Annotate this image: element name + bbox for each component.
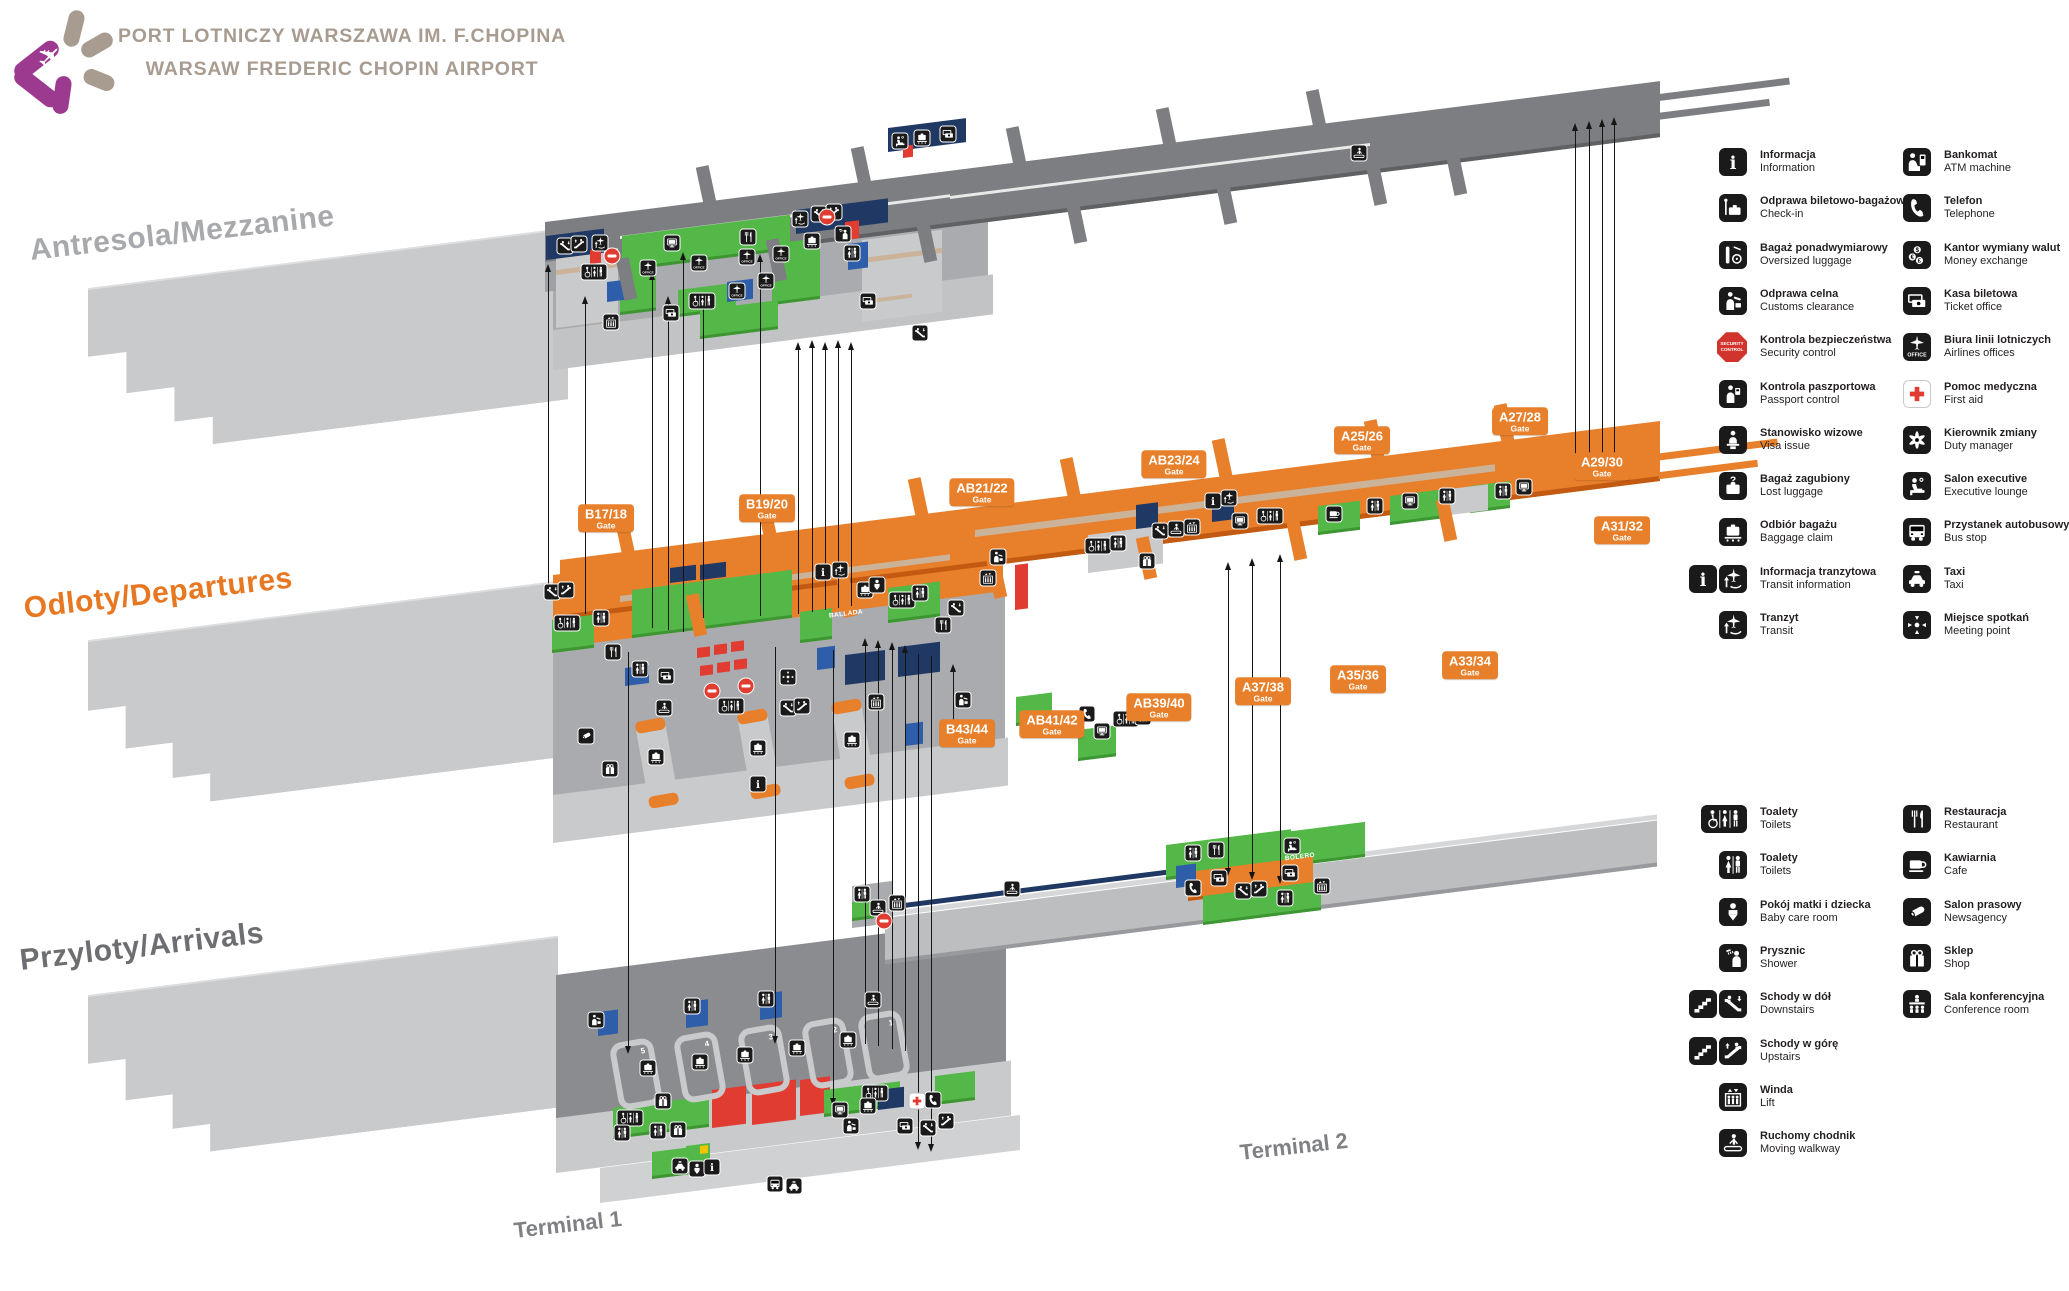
legend-icon-box xyxy=(1685,1083,1747,1111)
customs-icon xyxy=(990,549,1007,566)
toilets-acc-icon xyxy=(581,264,608,281)
news-icon xyxy=(1903,898,1931,926)
gate-label-AB23-24: AB23/24Gate xyxy=(1141,450,1206,478)
svg-text:i: i xyxy=(821,567,825,578)
gate-number: B43/44 xyxy=(946,722,988,735)
ticket-icon xyxy=(658,668,675,685)
level-connection-arrow xyxy=(1575,127,1576,474)
level-connection-arrow xyxy=(918,654,919,1146)
stop-icon xyxy=(704,683,721,700)
legend-text: Biura linii lotniczychAirlines offices xyxy=(1944,334,2051,360)
legend-icon-box xyxy=(1685,1037,1747,1065)
exchange-icon: $€£ xyxy=(1903,241,1931,269)
gate-word: Gate xyxy=(956,495,1007,504)
legend-text-pl: Informacja xyxy=(1760,149,1816,162)
ticket-icon xyxy=(1282,865,1299,882)
esc-down-icon xyxy=(1152,523,1169,540)
level-connection-arrow xyxy=(892,646,893,1049)
legend-item-transit-information: iInformacja tranzytowaTransit informatio… xyxy=(1685,564,1876,594)
legend-item-moving-walkway: Ruchomy chodnikMoving walkway xyxy=(1685,1128,1855,1158)
esc-down-icon xyxy=(1235,883,1252,900)
level-connection-arrow xyxy=(865,642,866,1044)
legend-text: KawiarniaCafe xyxy=(1944,852,1996,878)
legend-text-en: Passport control xyxy=(1760,394,1876,407)
legend-item-duty-manager: Kierownik zmianyDuty manager xyxy=(1869,425,2037,455)
transit-icon xyxy=(1719,611,1747,639)
gate-label-AB21-22: AB21/22Gate xyxy=(949,478,1014,506)
gate-finger xyxy=(1212,438,1233,482)
legend-item-atm-machine: BankomatATM machine xyxy=(1869,147,2011,177)
jet-bridge xyxy=(1655,99,1770,120)
level-connection-arrow xyxy=(1228,566,1229,872)
customs-icon xyxy=(955,692,972,709)
level-connection-arrow xyxy=(1589,125,1590,476)
walkway-icon xyxy=(1168,521,1185,538)
esc-up-icon xyxy=(1719,1037,1747,1065)
legend-text-pl: Tranzyt xyxy=(1760,612,1799,625)
departures-apron-plate xyxy=(88,581,558,817)
baby-icon xyxy=(1719,898,1747,926)
legend-text-pl: Bagaż zagubiony xyxy=(1760,473,1850,486)
carousel-number: 4 xyxy=(704,1039,710,1049)
screen-icon xyxy=(1232,513,1249,530)
ticket-icon xyxy=(860,293,877,310)
duty-icon xyxy=(1903,426,1931,454)
legend-text: Sala konferencyjnaConference room xyxy=(1944,991,2044,1017)
toilets-acc-icon xyxy=(1257,508,1284,525)
legend-text-en: Money exchange xyxy=(1944,255,2060,268)
walkway-icon xyxy=(1351,145,1368,162)
legend-item-shop: SklepShop xyxy=(1869,943,1973,973)
toilets-icon xyxy=(758,991,775,1008)
legend-text-pl: Telefon xyxy=(1944,195,1995,208)
legend-text-en: Executive lounge xyxy=(1944,486,2028,499)
legend-item-lift: WindaLift xyxy=(1685,1082,1793,1112)
legend-text: Pomoc medycznaFirst aid xyxy=(1944,381,2037,407)
toilets-icon xyxy=(1367,498,1384,515)
gate-word: Gate xyxy=(1026,727,1077,736)
legend-text: Kierownik zmianyDuty manager xyxy=(1944,427,2037,453)
gate-number: AB23/24 xyxy=(1148,453,1199,466)
svg-text:OFFICE: OFFICE xyxy=(741,260,752,264)
gate-label-A37-38: A37/38Gate xyxy=(1235,677,1291,705)
customs-icon xyxy=(843,1118,860,1135)
legend-text: Schody w dółDownstairs xyxy=(1760,991,1831,1017)
level-label-departures: Odloty/Departures xyxy=(22,562,294,626)
info-icon: i xyxy=(1719,148,1747,176)
legend-text-pl: Przystanek autobusowy xyxy=(1944,519,2069,532)
lounge-icon xyxy=(1284,838,1301,855)
legend-icon-box xyxy=(1685,518,1747,546)
level-connection-arrow xyxy=(798,346,799,614)
legend-text-pl: Restauracja xyxy=(1944,806,2006,819)
svg-text:OFFICE: OFFICE xyxy=(775,257,786,261)
legend-text-en: Toilets xyxy=(1760,865,1798,878)
gate-number: A35/36 xyxy=(1337,668,1379,681)
toilets-icon xyxy=(1719,851,1747,879)
legend-text-pl: Kontrola paszportowa xyxy=(1760,381,1876,394)
legend-icon-box xyxy=(1685,898,1747,926)
legend-text-en: Cafe xyxy=(1944,865,1996,878)
level-connection-arrow xyxy=(585,300,586,614)
info-icon: i xyxy=(815,564,832,581)
transit-icon xyxy=(792,211,809,228)
legend-text-en: Meeting point xyxy=(1944,625,2029,638)
shower-icon xyxy=(835,226,852,243)
legend-icon-box xyxy=(1869,944,1931,972)
gate-word: Gate xyxy=(1148,467,1199,476)
ticket-icon xyxy=(940,126,957,143)
legend-item-toilets: ToaletyToilets xyxy=(1685,850,1798,880)
claim-icon xyxy=(737,1047,754,1064)
legend-item-meeting-point: Miejsce spotkańMeeting point xyxy=(1869,610,2029,640)
level-connection-arrow xyxy=(628,652,629,1050)
esc-up-icon xyxy=(558,582,575,599)
walkway-icon xyxy=(865,992,882,1009)
atm-icon xyxy=(1903,148,1931,176)
restaurant-icon xyxy=(1208,842,1225,859)
legend-icon-box: $€£ xyxy=(1869,241,1931,269)
legend-text-en: Bus stop xyxy=(1944,532,2069,545)
toilets-acc-icon xyxy=(1701,805,1747,833)
legend-text: RestauracjaRestaurant xyxy=(1944,806,2006,832)
screen-icon xyxy=(1402,493,1419,510)
legend-item-restaurant: RestauracjaRestaurant xyxy=(1869,804,2006,834)
toilets-acc-icon xyxy=(689,293,716,310)
gate-word: Gate xyxy=(1341,443,1383,452)
legend-text-en: Telephone xyxy=(1944,208,1995,221)
toilets-icon xyxy=(1110,535,1127,552)
legend-text-pl: Salon executive xyxy=(1944,473,2028,486)
legend-text-en: Ticket office xyxy=(1944,301,2017,314)
legend-icon-box xyxy=(1869,898,1931,926)
seating xyxy=(734,658,747,670)
legend-text-pl: Sklep xyxy=(1944,945,1973,958)
shop-icon xyxy=(602,761,619,778)
legend-text-pl: Bankomat xyxy=(1944,149,2011,162)
legend-text: BankomatATM machine xyxy=(1944,149,2011,175)
gate-number: A27/28 xyxy=(1499,410,1541,423)
shop-icon xyxy=(655,1093,672,1110)
legend-item-transit: TranzytTransit xyxy=(1685,610,1799,640)
legend-item-bus-stop: Przystanek autobusowyBus stop xyxy=(1869,517,2069,547)
toilets-icon xyxy=(632,661,649,678)
legend-icon-box xyxy=(1869,851,1931,879)
svg-text:i: i xyxy=(756,779,760,790)
esc-up-icon xyxy=(571,236,588,253)
office-icon: OFFICE xyxy=(1903,333,1931,361)
legend-text-en: Upstairs xyxy=(1760,1051,1838,1064)
office-icon: OFFICE xyxy=(729,283,746,300)
gate-label-A25-26: A25/26Gate xyxy=(1334,426,1390,454)
svg-text:OFFICE: OFFICE xyxy=(1907,353,1927,359)
legend-icon-box xyxy=(1869,287,1931,315)
phone-icon xyxy=(925,1092,942,1109)
esc-up-icon xyxy=(938,1113,955,1130)
legend-text: Bagaż zagubionyLost luggage xyxy=(1760,473,1850,499)
lounge-icon xyxy=(892,133,909,150)
legend-text-en: Duty manager xyxy=(1944,440,2037,453)
legend-text: Salon prasowyNewsagency xyxy=(1944,899,2022,925)
legend-item-newsagency: Salon prasowyNewsagency xyxy=(1869,897,2022,927)
legend-icon-box: ? xyxy=(1685,472,1747,500)
claim-icon xyxy=(844,732,861,749)
legend-text: Odprawa celnaCustoms clearance xyxy=(1760,288,1854,314)
jet-bridge xyxy=(1655,78,1790,102)
level-connection-arrow xyxy=(905,649,906,1051)
legend-icon-box xyxy=(1685,241,1747,269)
legend-text-en: Toilets xyxy=(1760,819,1798,832)
legend-text-en: Transit information xyxy=(1760,579,1876,592)
level-connection-arrow xyxy=(833,650,834,1102)
legend-text: Salon executiveExecutive lounge xyxy=(1944,473,2028,499)
legend-item-baggage-claim: Odbiór bagażuBaggage claim xyxy=(1685,517,1837,547)
legend-icon-box xyxy=(1869,194,1931,222)
claim-icon xyxy=(860,1098,877,1115)
restaurant-icon xyxy=(935,617,952,634)
claim-icon xyxy=(750,740,767,757)
legend-text-pl: Informacja tranzytowa xyxy=(1760,566,1876,579)
legend-text: TelefonTelephone xyxy=(1944,195,1995,221)
toilets-icon xyxy=(593,610,610,627)
bus-icon xyxy=(767,1176,784,1193)
restaurant-icon xyxy=(740,229,757,246)
legend-item-downstairs: Schody w dółDownstairs xyxy=(1685,989,1831,1019)
gate-word: Gate xyxy=(1601,533,1643,542)
legend-text-en: Baggage claim xyxy=(1760,532,1837,545)
lift-icon xyxy=(980,570,997,587)
screen-icon xyxy=(1094,723,1111,740)
legend-item-baby-care-room: Pokój matki i dzieckaBaby care room xyxy=(1685,897,1871,927)
gate-word: Gate xyxy=(746,511,788,520)
level-connection-arrow xyxy=(548,268,549,598)
taxi-icon xyxy=(672,1158,689,1175)
stop-icon xyxy=(604,248,621,265)
meeting-icon xyxy=(780,669,797,686)
legend-icon-box xyxy=(1685,611,1747,639)
legend-text-pl: Schody w górę xyxy=(1760,1038,1838,1051)
legend-text-en: Lift xyxy=(1760,1097,1793,1110)
legend-item-airlines-offices: OFFICEBiura linii lotniczychAirlines off… xyxy=(1869,332,2051,362)
legend-text: Kasa biletowaTicket office xyxy=(1944,288,2017,314)
legend-text: Schody w góręUpstairs xyxy=(1760,1038,1838,1064)
claim-icon xyxy=(840,1032,857,1049)
legend-text-en: Moving walkway xyxy=(1760,1143,1855,1156)
cafe-icon xyxy=(1326,506,1343,523)
baby-icon xyxy=(869,577,886,594)
gate-finger xyxy=(1060,457,1081,501)
svg-text:OFFICE: OFFICE xyxy=(642,271,653,275)
legend-text-en: Restaurant xyxy=(1944,819,2006,832)
legend-text-pl: Miejsce spotkań xyxy=(1944,612,2029,625)
legend-text-en: Airlines offices xyxy=(1944,347,2051,360)
arrivals-yellow-block xyxy=(700,1145,708,1154)
gate-label-A29-30: A29/30Gate xyxy=(1574,452,1630,480)
departures-shop-block xyxy=(800,608,832,643)
shop-icon xyxy=(1903,944,1931,972)
gate-word: Gate xyxy=(1499,424,1541,433)
legend-text: Stanowisko wizoweVisa issue xyxy=(1760,427,1863,453)
legend-item-executive-lounge: Salon executiveExecutive lounge xyxy=(1869,471,2028,501)
stairs-icon xyxy=(1689,990,1717,1018)
stair-block xyxy=(905,722,923,746)
legend-icon-box xyxy=(1869,990,1931,1018)
office-icon: OFFICE xyxy=(773,246,790,263)
toilets-icon xyxy=(844,245,861,262)
gate-finger xyxy=(908,477,929,521)
conference-icon xyxy=(1903,990,1931,1018)
legend-text-pl: Toalety xyxy=(1760,852,1798,865)
restaurant-icon xyxy=(605,644,622,661)
svg-text:OFFICE: OFFICE xyxy=(760,284,771,288)
legend-item-upstairs: Schody w góręUpstairs xyxy=(1685,1036,1838,1066)
toilets-acc-icon xyxy=(554,615,581,632)
legend-text: Pokój matki i dzieckaBaby care room xyxy=(1760,899,1871,925)
legend-icon-box xyxy=(1869,472,1931,500)
level-connection-arrow xyxy=(1614,121,1615,480)
legend-icon-box xyxy=(1685,194,1747,222)
gate-word: Gate xyxy=(1242,694,1284,703)
taxi-icon xyxy=(786,1178,803,1195)
level-connection-arrow xyxy=(683,256,684,632)
legend-item-telephone: TelefonTelephone xyxy=(1869,193,1995,223)
level-connection-arrow xyxy=(760,258,761,616)
arrivals-apron-plate xyxy=(88,936,558,1167)
toilets-icon xyxy=(1185,845,1202,862)
seating xyxy=(714,643,727,655)
claim-icon xyxy=(692,1054,709,1071)
esc-down-icon xyxy=(920,1120,937,1137)
level-connection-arrow xyxy=(1252,562,1253,876)
lost-icon: ? xyxy=(1719,472,1747,500)
news-icon xyxy=(578,728,595,745)
seating-row xyxy=(1015,563,1028,610)
screen-icon xyxy=(832,1102,849,1119)
legend-text-pl: Stanowisko wizowe xyxy=(1760,427,1863,440)
esc-up-icon xyxy=(794,698,811,715)
walkway-icon xyxy=(1719,1129,1747,1157)
lift-icon xyxy=(1184,519,1201,536)
legend-icon-box xyxy=(1869,426,1931,454)
legend-text-en: Taxi xyxy=(1944,579,1965,592)
legend-text-pl: Odprawa celna xyxy=(1760,288,1854,301)
ticket-icon xyxy=(1903,287,1931,315)
phone-icon xyxy=(1903,194,1931,222)
toilets-icon xyxy=(1439,488,1456,505)
walkway-icon xyxy=(1004,881,1021,898)
legend-text-en: Information xyxy=(1760,162,1816,175)
gate-number: B17/18 xyxy=(585,507,627,520)
taxi-icon xyxy=(1903,565,1931,593)
legend-text-pl: Schody w dół xyxy=(1760,991,1831,1004)
legend-icon-box xyxy=(1869,805,1931,833)
legend-icon-box xyxy=(1869,518,1931,546)
claim-icon xyxy=(648,749,665,766)
legend-icon-box: i xyxy=(1685,565,1747,593)
legend-icon-box xyxy=(1685,944,1747,972)
legend-text: WindaLift xyxy=(1760,1084,1793,1110)
svg-text:i: i xyxy=(1730,153,1737,173)
legend-text-pl: Kierownik zmiany xyxy=(1944,427,2037,440)
lift-icon xyxy=(889,895,906,912)
legend-text: InformacjaInformation xyxy=(1760,149,1816,175)
legend-text-en: Conference room xyxy=(1944,1004,2044,1017)
legend-text-pl: Prysznic xyxy=(1760,945,1805,958)
gate-label-AB39-40: AB39/40Gate xyxy=(1126,693,1191,721)
phone-icon xyxy=(1185,880,1202,897)
legend-text-pl: Pokój matki i dziecka xyxy=(1760,899,1871,912)
legend-text-pl: Winda xyxy=(1760,1084,1793,1097)
seating xyxy=(717,661,730,673)
gate-word: Gate xyxy=(1337,682,1379,691)
legend-item-taxi: TaxiTaxi xyxy=(1869,564,1965,594)
gate-word: Gate xyxy=(946,736,988,745)
gate-number: A29/30 xyxy=(1581,455,1623,468)
gate-label-A27-28: A27/28Gate xyxy=(1492,407,1548,435)
gate-number: A25/26 xyxy=(1341,429,1383,442)
legend-icon-box xyxy=(1869,611,1931,639)
level-connection-arrow xyxy=(812,344,813,612)
info-icon: i xyxy=(1689,565,1717,593)
legend-text-pl: Kasa biletowa xyxy=(1944,288,2017,301)
firstaid-icon xyxy=(909,1093,926,1110)
legend-text: PrysznicShower xyxy=(1760,945,1805,971)
legend-icon-box xyxy=(1685,851,1747,879)
level-connection-arrow xyxy=(703,300,704,618)
legend-text-en: First aid xyxy=(1944,394,2037,407)
gate-word: Gate xyxy=(1133,710,1184,719)
legend-text-pl: Ruchomy chodnik xyxy=(1760,1130,1855,1143)
shop-icon xyxy=(670,1122,687,1139)
lounge-icon xyxy=(1903,472,1931,500)
svg-text:OFFICE: OFFICE xyxy=(693,266,704,270)
esc-up-icon xyxy=(1251,881,1268,898)
level-connection-arrow xyxy=(775,647,776,1040)
cafe-icon xyxy=(1903,851,1931,879)
claim-icon xyxy=(789,1040,806,1057)
toilets-icon xyxy=(650,1123,667,1140)
lift-icon xyxy=(868,694,885,711)
gate-word: Gate xyxy=(585,521,627,530)
legend-text: ToaletyToilets xyxy=(1760,852,1798,878)
legend-text-en: Transit xyxy=(1760,625,1799,638)
legend-text-pl: Odbiór bagażu xyxy=(1760,519,1837,532)
legend-text-en: Newsagency xyxy=(1944,912,2022,925)
level-connection-arrow xyxy=(851,346,852,606)
legend-text: Przystanek autobusowyBus stop xyxy=(1944,519,2069,545)
legend-text-en: Baby care room xyxy=(1760,912,1871,925)
stop-icon xyxy=(876,913,893,930)
visa-icon xyxy=(1719,426,1747,454)
legend-text: Kontrola paszportowaPassport control xyxy=(1760,381,1876,407)
legend-text-pl: Kawiarnia xyxy=(1944,852,1996,865)
legend-text: Informacja tranzytowaTransit information xyxy=(1760,566,1876,592)
office-icon: OFFICE xyxy=(739,249,756,266)
toilets-icon xyxy=(1495,483,1512,500)
claim-icon xyxy=(1719,518,1747,546)
gate-number: AB41/42 xyxy=(1026,713,1077,726)
stairs-icon xyxy=(1689,1037,1717,1065)
level-connection-arrow xyxy=(668,300,669,630)
lift-icon xyxy=(1719,1083,1747,1111)
ticket-icon xyxy=(897,1118,914,1135)
legend-item-first-aid: Pomoc medycznaFirst aid xyxy=(1869,379,2037,409)
gate-label-A33-34: A33/34Gate xyxy=(1442,651,1498,679)
gate-number: A37/38 xyxy=(1242,680,1284,693)
legend-text-en: Customs clearance xyxy=(1760,301,1854,314)
legend-text: SklepShop xyxy=(1944,945,1973,971)
lift-icon xyxy=(603,314,620,331)
